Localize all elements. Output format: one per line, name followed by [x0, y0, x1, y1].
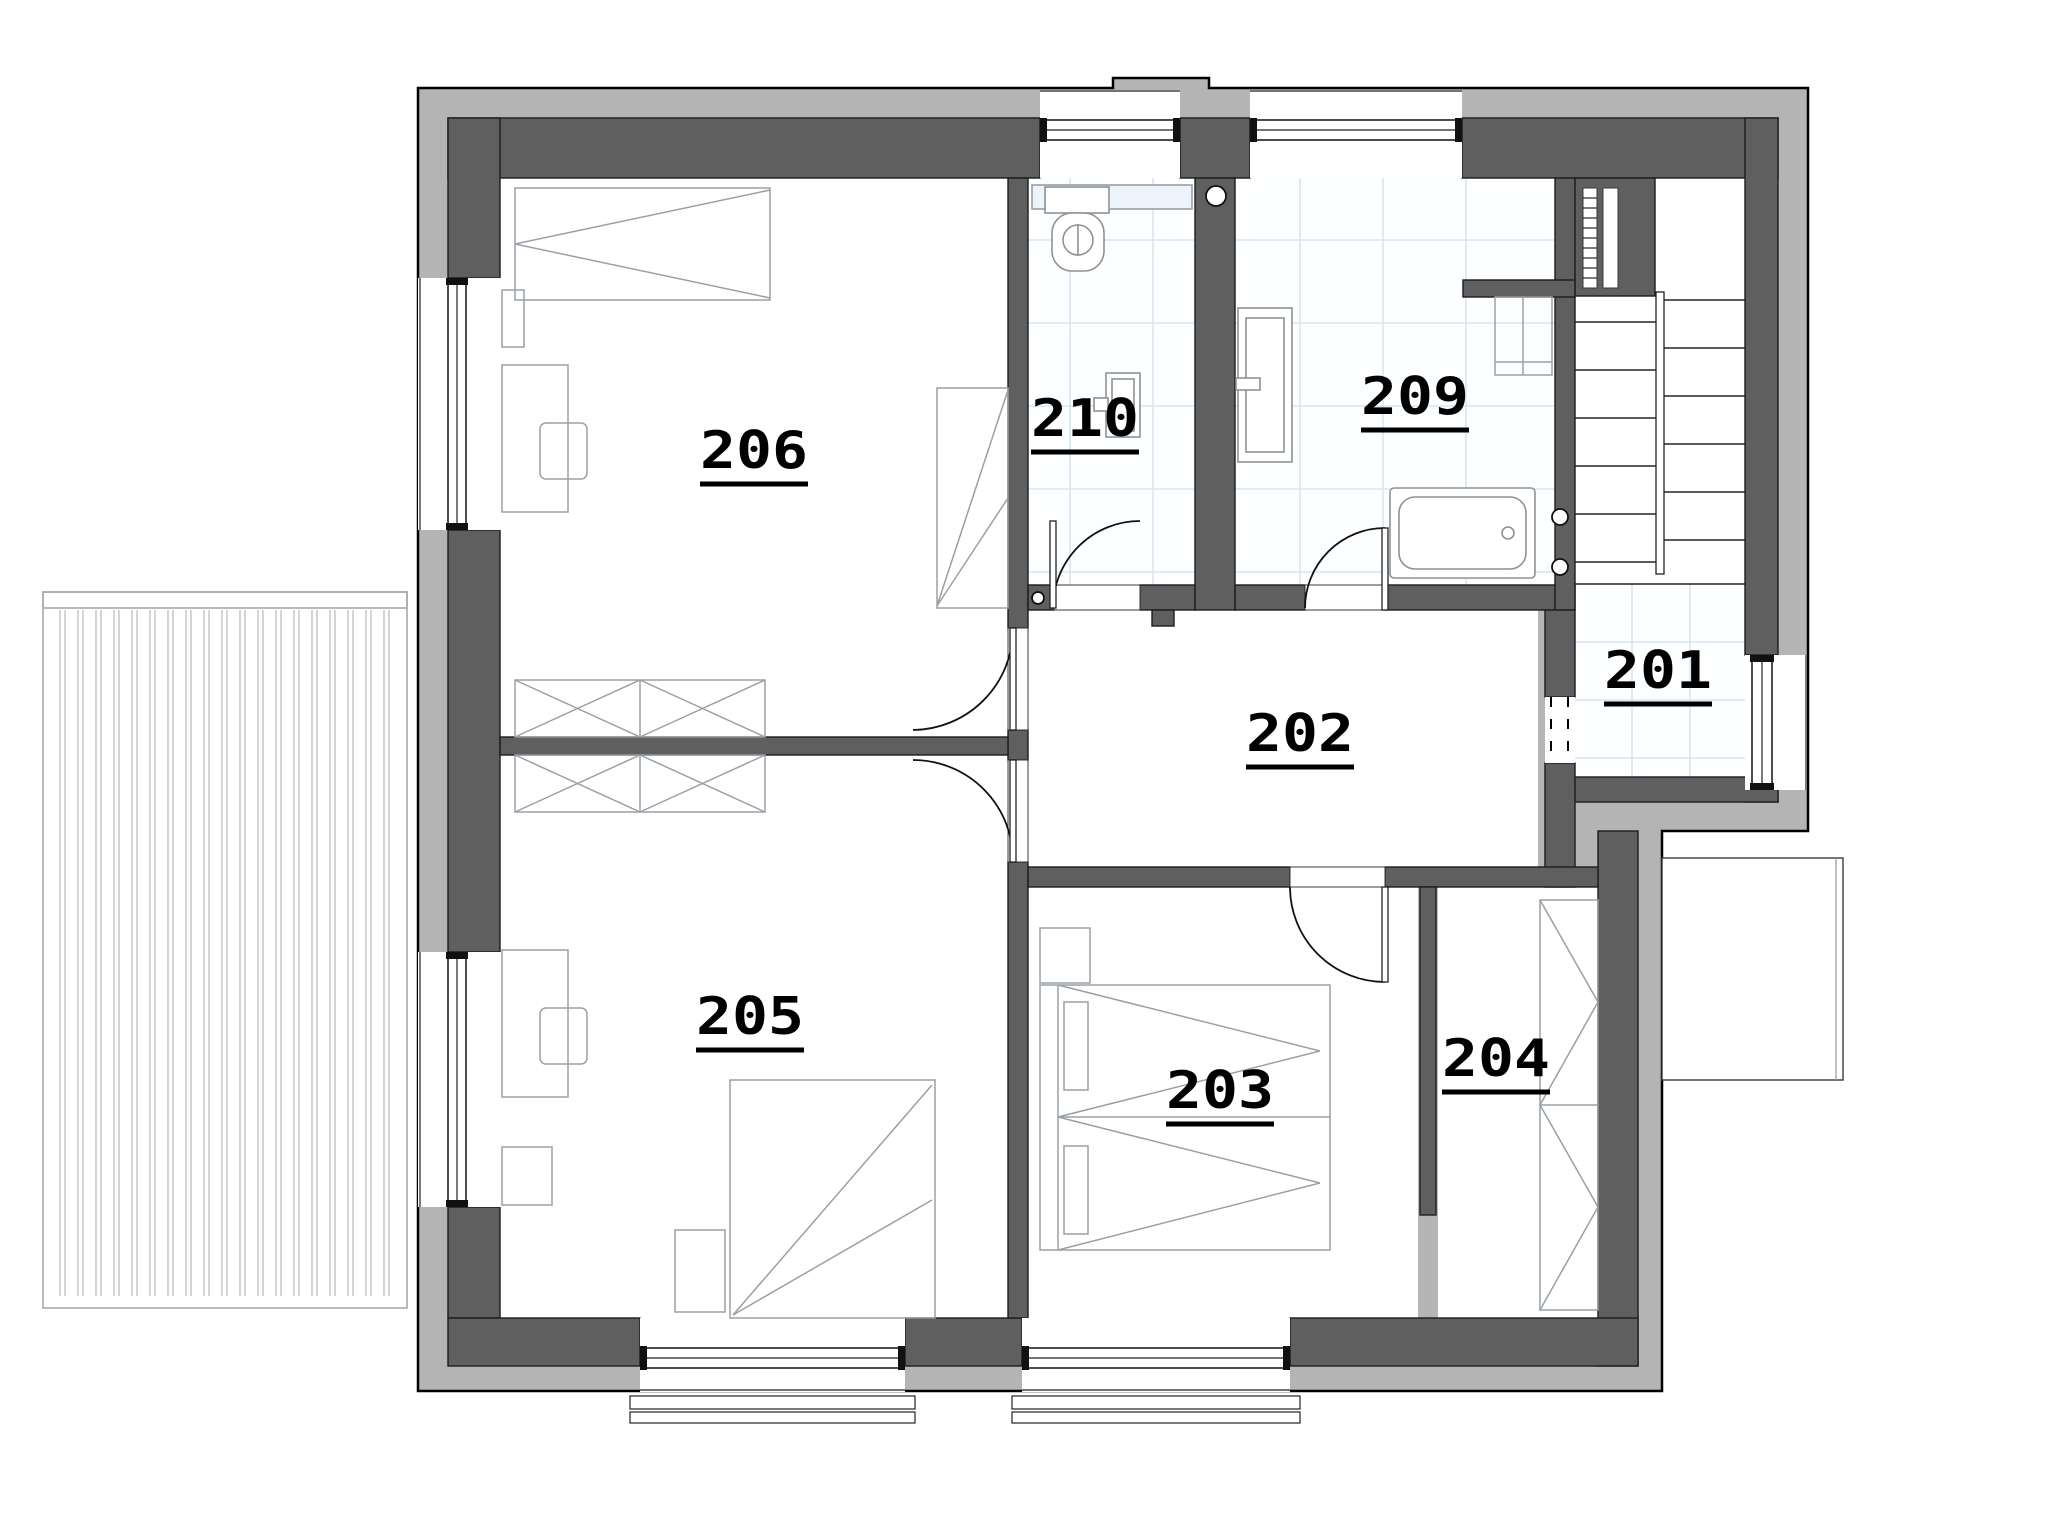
floor-plan-canvas: 206 210 209 201 202 205 203 204	[0, 0, 2048, 1524]
label-room-202: 202	[1246, 704, 1354, 764]
duct-slot-plain	[1603, 188, 1618, 288]
window-205-south	[630, 1318, 915, 1423]
wall-left-a	[448, 118, 500, 278]
sink-209	[1236, 308, 1292, 462]
wall-bottom-b	[1290, 1318, 1638, 1366]
wall-top-left	[448, 118, 1040, 178]
wall-hall-north-d	[1385, 585, 1575, 610]
wall-206-205	[500, 737, 1008, 755]
wall-left-b	[448, 530, 500, 952]
balcony-decking-planks	[60, 610, 389, 1296]
wall-202-204	[1385, 867, 1598, 887]
balcony-terrace	[43, 592, 407, 1308]
wall-top-pier	[1180, 118, 1250, 178]
balcony-edge-band	[43, 592, 407, 608]
exterior-sill-3	[1012, 1396, 1300, 1409]
wall-top-right	[1462, 118, 1778, 178]
label-room-210: 210	[1031, 389, 1139, 449]
wall-206-210	[1008, 178, 1028, 628]
wall-shower-stub	[1463, 280, 1575, 297]
opening-202-201	[1545, 697, 1575, 763]
label-room-205: 205	[696, 987, 804, 1047]
drain	[1502, 527, 1514, 539]
lower-roof-outline	[1662, 858, 1843, 1080]
wall-hall-north-c	[1235, 585, 1305, 610]
label-room-201: 201	[1604, 641, 1712, 701]
window-205-west	[418, 952, 502, 1207]
tap	[1236, 378, 1260, 390]
floor-204	[1438, 887, 1598, 1318]
wall-pilaster-stub	[1152, 610, 1174, 626]
toilet	[1045, 187, 1109, 271]
wall-202-201-upper	[1545, 610, 1575, 697]
window-210-north	[1040, 90, 1180, 178]
label-room-204: 204	[1442, 1029, 1550, 1089]
floor-plan-drawing: 206 210 209 201 202 205 203 204	[0, 0, 2048, 1524]
door-hinge-dot	[1032, 592, 1044, 604]
window-203-south	[1012, 1318, 1300, 1423]
window-209-north	[1250, 90, 1462, 178]
wall-left-c	[448, 1207, 500, 1318]
label-room-203: 203	[1166, 1061, 1274, 1121]
wall-east-lower	[1598, 831, 1638, 1366]
wall-203-204-partition	[1420, 887, 1436, 1215]
bathtub	[1390, 488, 1535, 578]
wall-right-upper	[1745, 118, 1778, 655]
wall-hall-stub	[1008, 730, 1028, 760]
wall-202-203	[1028, 867, 1290, 887]
stair-center-rail	[1656, 292, 1664, 574]
exterior-sill-2	[630, 1412, 915, 1423]
wall-hall-north-b	[1140, 585, 1195, 610]
exterior-sill-4	[1012, 1412, 1300, 1423]
label-room-206: 206	[700, 421, 808, 481]
window-206-west	[418, 278, 502, 530]
pipe-riser	[1206, 186, 1226, 206]
wall-205-203	[1008, 862, 1028, 1318]
exterior-sill	[630, 1396, 915, 1409]
wall-209-stair	[1555, 178, 1575, 610]
label-room-209: 209	[1361, 367, 1469, 427]
pipe-riser	[1552, 559, 1568, 575]
wall-bottom-a	[448, 1318, 640, 1366]
wall-bottom-pier	[905, 1318, 1022, 1366]
window-201-east	[1745, 655, 1807, 790]
pipe-riser	[1552, 509, 1568, 525]
wall-210-209	[1195, 178, 1235, 610]
